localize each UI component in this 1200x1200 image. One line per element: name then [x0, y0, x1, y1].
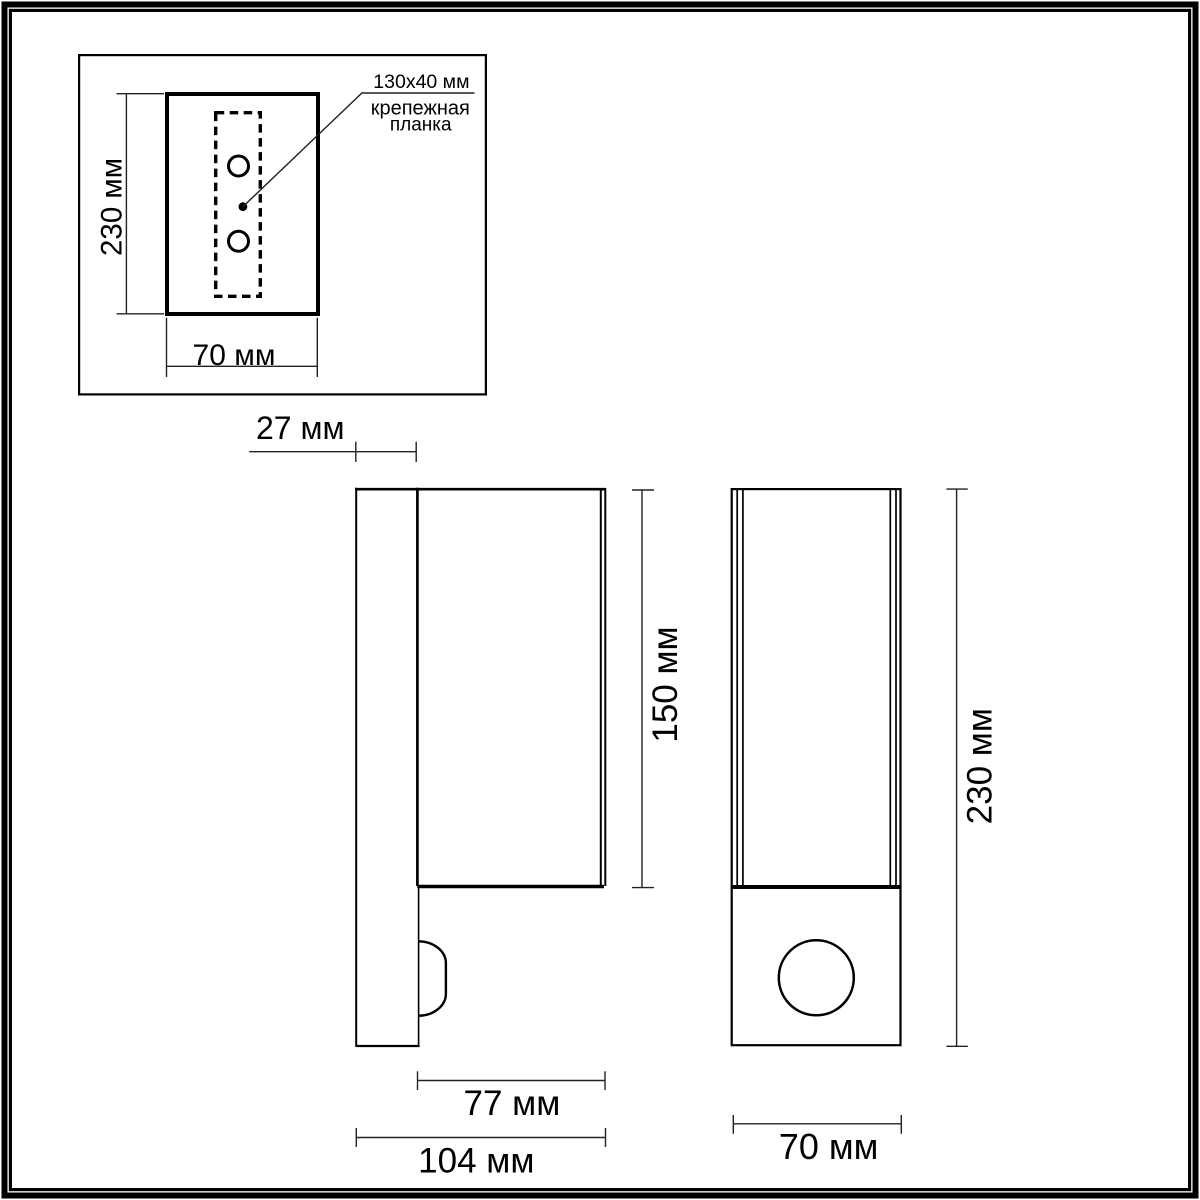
svg-text:230 мм: 230 мм — [961, 708, 1000, 824]
svg-text:77 мм: 77 мм — [464, 1084, 561, 1123]
svg-text:130x40 мм: 130x40 мм — [373, 71, 469, 93]
svg-text:27 мм: 27 мм — [256, 410, 344, 446]
svg-text:70 мм: 70 мм — [193, 339, 276, 372]
svg-text:планка: планка — [390, 115, 452, 136]
svg-text:70 мм: 70 мм — [779, 1126, 879, 1167]
svg-text:104 мм: 104 мм — [418, 1142, 534, 1181]
svg-text:230 мм: 230 мм — [95, 158, 128, 256]
svg-text:150 мм: 150 мм — [646, 626, 685, 742]
